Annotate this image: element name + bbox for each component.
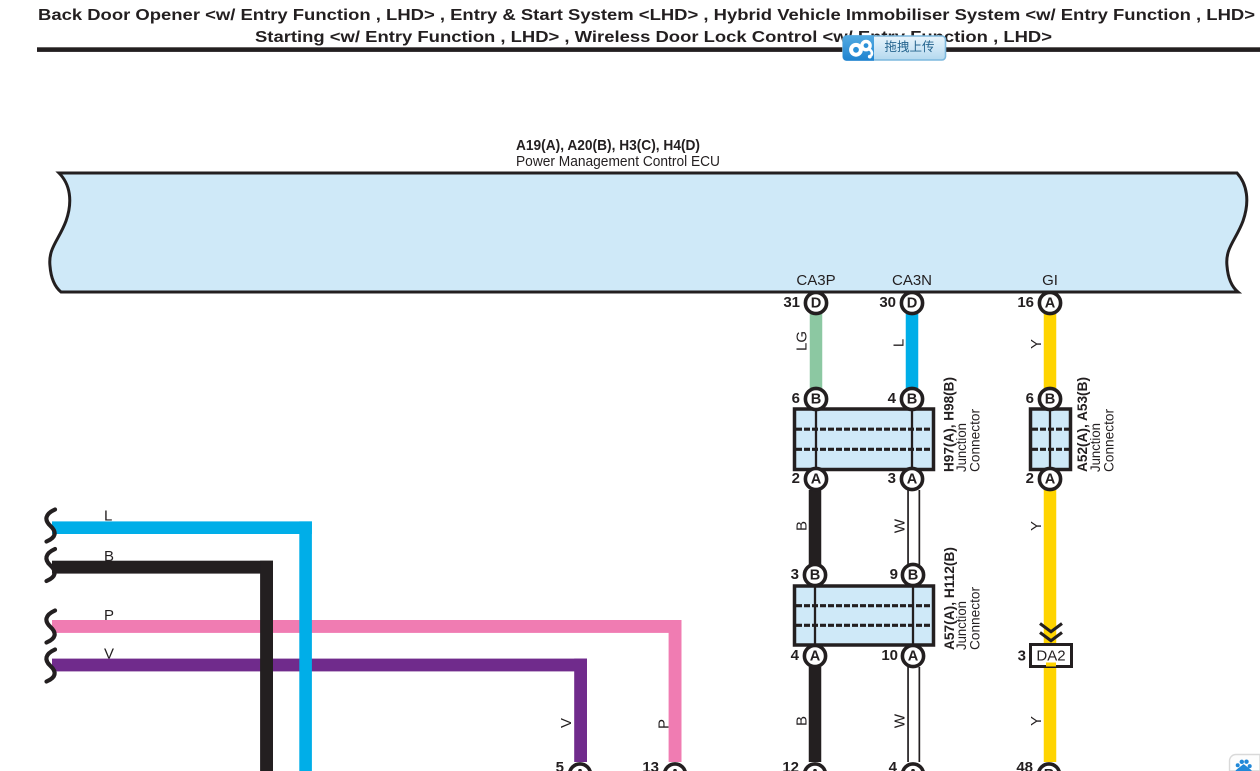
svg-text:D: D: [907, 296, 918, 312]
svg-text:A: A: [575, 767, 586, 771]
svg-text:DA2: DA2: [1036, 648, 1065, 665]
svg-text:D: D: [811, 296, 822, 312]
svg-text:W: W: [892, 518, 909, 533]
svg-text:B: B: [794, 521, 811, 531]
svg-text:16: 16: [1017, 294, 1034, 311]
svg-text:13: 13: [642, 759, 659, 771]
svg-text:Y: Y: [1028, 339, 1045, 349]
svg-text:A: A: [1045, 296, 1056, 312]
svg-text:2: 2: [1026, 470, 1034, 487]
svg-text:A19(A), A20(B), H3(C), H4(D): A19(A), A20(B), H3(C), H4(D): [516, 137, 700, 154]
svg-text:L: L: [104, 508, 112, 525]
svg-text:A: A: [907, 472, 918, 488]
svg-text:W: W: [892, 713, 909, 728]
svg-text:A: A: [810, 649, 821, 665]
svg-text:30: 30: [879, 294, 896, 311]
svg-text:Connector: Connector: [967, 587, 983, 650]
svg-text:6: 6: [1026, 390, 1034, 407]
svg-text:V: V: [558, 718, 575, 728]
svg-text:V: V: [104, 646, 114, 663]
svg-text:CA3N: CA3N: [892, 272, 932, 289]
svg-text:Y: Y: [1028, 716, 1045, 726]
svg-text:3: 3: [888, 470, 896, 487]
svg-text:2: 2: [792, 470, 800, 487]
svg-text:31: 31: [783, 294, 800, 311]
svg-text:Connector: Connector: [967, 409, 983, 472]
svg-text:Connector: Connector: [1101, 409, 1117, 472]
svg-text:P: P: [104, 607, 114, 624]
svg-text:6: 6: [792, 390, 800, 407]
svg-text:A: A: [811, 472, 822, 488]
svg-text:CA3P: CA3P: [796, 272, 835, 289]
svg-text:拖拽上传: 拖拽上传: [884, 39, 934, 54]
svg-text:4: 4: [889, 759, 898, 771]
svg-text:4: 4: [791, 647, 800, 664]
svg-text:A: A: [810, 767, 821, 771]
svg-text:5: 5: [556, 759, 564, 771]
svg-text:A: A: [670, 767, 681, 771]
svg-text:L: L: [891, 339, 908, 347]
svg-text:LG: LG: [794, 331, 811, 351]
svg-text:B: B: [104, 548, 114, 565]
svg-text:48: 48: [1016, 759, 1033, 771]
svg-text:Power Management Control ECU: Power Management Control ECU: [516, 153, 720, 170]
svg-text:B: B: [810, 568, 821, 584]
svg-text:B: B: [908, 568, 919, 584]
svg-text:B: B: [794, 716, 811, 726]
svg-text:B: B: [1045, 392, 1056, 408]
svg-text:3: 3: [1018, 648, 1026, 665]
svg-text:Y: Y: [1028, 521, 1045, 531]
svg-text:4: 4: [888, 390, 897, 407]
svg-text:10: 10: [881, 647, 898, 664]
svg-text:12: 12: [782, 759, 799, 771]
svg-text:B: B: [811, 392, 822, 408]
svg-text:B: B: [907, 392, 918, 408]
svg-text:B: B: [1044, 767, 1055, 771]
svg-text:GI: GI: [1042, 272, 1058, 289]
svg-text:Back Door Opener <w/ Entry Fun: Back Door Opener <w/ Entry Function , LH…: [38, 7, 1255, 24]
svg-text:P: P: [656, 719, 673, 729]
svg-text:A: A: [1045, 472, 1056, 488]
svg-text:A: A: [908, 767, 919, 771]
svg-text:9: 9: [890, 566, 898, 583]
svg-text:A: A: [908, 649, 919, 665]
svg-text:3: 3: [791, 566, 799, 583]
